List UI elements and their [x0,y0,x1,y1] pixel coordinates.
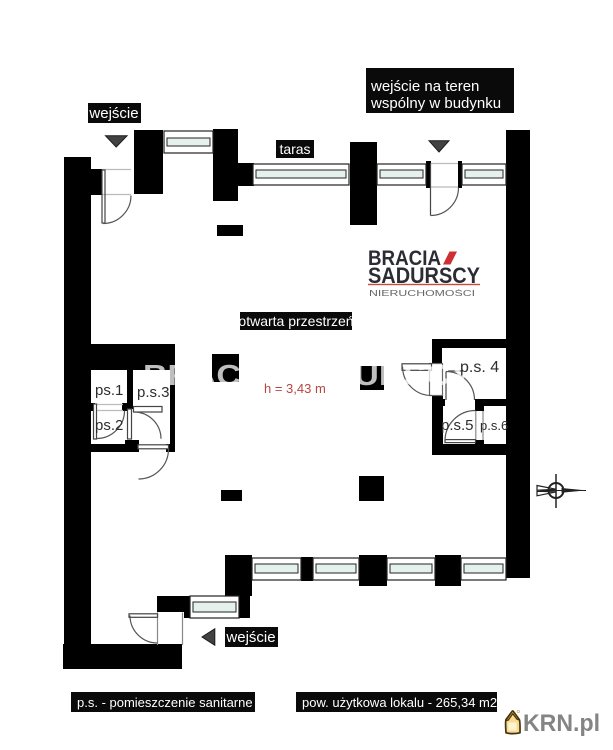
svg-text:p.s.5: p.s.5 [441,417,474,434]
svg-text:p.s.6: p.s.6 [480,418,508,433]
svg-text:pow. użytkowa lokalu - 265,34: pow. użytkowa lokalu - 265,34 m2 [302,695,497,710]
svg-text:NIERUCHOMOŚCI: NIERUCHOMOŚCI [369,289,475,298]
svg-text:otwarta przestrzeń: otwarta przestrzeń [238,313,353,329]
svg-text:p.s. - pomieszczenie sanitarne: p.s. - pomieszczenie sanitarne [77,695,253,710]
svg-text:p.s.3: p.s.3 [137,384,170,401]
svg-text:taras: taras [279,141,310,157]
svg-text:wspólny w budynku: wspólny w budynku [370,95,501,112]
svg-text:KRN.pl: KRN.pl [523,710,600,737]
svg-text:h = 3,43 m: h = 3,43 m [264,381,326,396]
svg-text:wejście na teren: wejście na teren [370,78,479,95]
svg-text:p.s. 4: p.s. 4 [460,359,499,376]
svg-text:wejście: wejście [88,105,138,122]
svg-text:ps.1: ps.1 [95,382,123,399]
svg-text:ps.2: ps.2 [95,417,123,434]
svg-text:wejście: wejście [225,629,275,646]
